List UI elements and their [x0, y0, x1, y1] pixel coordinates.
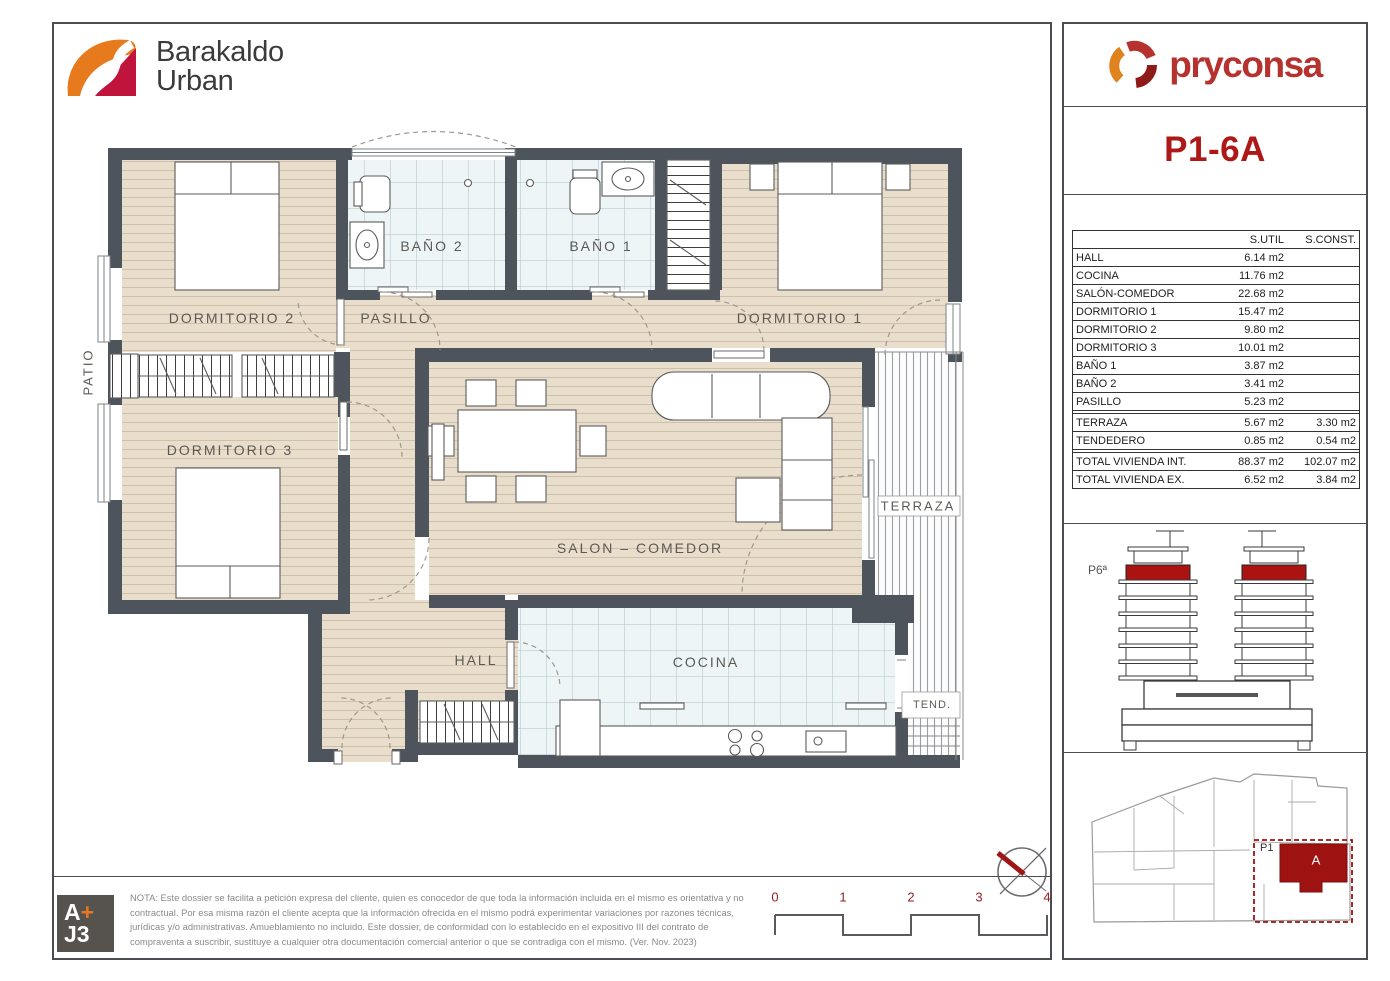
project-name-line2: Urban [156, 67, 284, 96]
compass-icon [998, 848, 1046, 896]
legal-note: NOTA: Este dossier se facilita a petició… [130, 891, 744, 949]
info-panel: pryconsa P1-6A S.UTIL S.CONST. HALL6.14 … [1062, 22, 1368, 960]
project-name-line1: Barakaldo [156, 38, 284, 67]
table-row: SALÓN-COMEDOR22.68 m2 [1073, 284, 1359, 302]
table-row-total: TOTAL VIVIENDA EX.6.52 m23.84 m2 [1073, 470, 1359, 488]
table-row: BAÑO 23.41 m2 [1073, 374, 1359, 392]
panel-divider-2 [1064, 194, 1366, 195]
room-label-tendedero: TEND. [913, 699, 951, 711]
room-label-dormitorio3: DORMITORIO 3 [167, 442, 293, 458]
scale-tick-0: 0 [771, 890, 778, 905]
table-row: DORMITORIO 29.80 m2 [1073, 320, 1359, 338]
architect-logo: A+ J3 [57, 895, 114, 952]
pryconsa-logo-icon [1108, 39, 1160, 91]
site-plan-svg [1064, 752, 1366, 958]
room-label-terraza: TERRAZA [881, 499, 956, 514]
scale-bar [775, 915, 1047, 935]
scale-tick-2: 2 [907, 890, 914, 905]
scale-tick-1: 1 [839, 890, 846, 905]
table-row: BAÑO 13.87 m2 [1073, 356, 1359, 374]
room-label-dormitorio2: DORMITORIO 2 [169, 310, 295, 326]
table-row-total: TOTAL VIVIENDA INT.88.37 m2102.07 m2 [1073, 449, 1359, 470]
room-label-salon-comedor: SALON – COMEDOR [557, 540, 723, 556]
barakaldo-logo-icon [62, 32, 142, 102]
col-header-sutil: S.UTIL [1217, 234, 1287, 246]
pryconsa-logo: pryconsa [1064, 24, 1366, 106]
areas-table: S.UTIL S.CONST. HALL6.14 m2 COCINA11.76 … [1072, 230, 1360, 489]
project-name: Barakaldo Urban [156, 38, 284, 96]
table-row: DORMITORIO 115.47 m2 [1073, 302, 1359, 320]
site-block-label: P1 [1260, 842, 1273, 854]
room-label-patio: PATIO [81, 348, 96, 395]
dossier-page: Barakaldo Urban DORMITORIO 2 PASILLO BAÑ… [0, 0, 1390, 981]
site-unit-label: A [1312, 853, 1321, 868]
barakaldo-urban-logo: Barakaldo Urban [62, 32, 284, 102]
room-label-bano2: BAÑO 2 [400, 238, 463, 254]
scale-tick-3: 3 [975, 890, 982, 905]
scale-tick-4: 4 [1043, 890, 1050, 905]
architect-logo-row2: J3 [64, 924, 114, 946]
developer-name: pryconsa [1169, 44, 1322, 86]
room-label-bano1: BAÑO 1 [569, 238, 632, 254]
room-label-hall: HALL [454, 652, 497, 668]
footer-divider [53, 876, 1050, 877]
room-label-pasillo: PASILLO [360, 310, 431, 326]
room-label-dormitorio1: DORMITORIO 1 [737, 310, 863, 326]
table-row: TERRAZA5.67 m23.30 m2 [1073, 410, 1359, 431]
areas-table-header: S.UTIL S.CONST. [1073, 231, 1359, 248]
room-label-cocina: COCINA [673, 654, 739, 670]
elevation-key: P6ª [1064, 523, 1366, 752]
elevation-svg [1064, 523, 1366, 752]
unit-code: P1-6A [1064, 106, 1366, 194]
table-row: HALL6.14 m2 [1073, 248, 1359, 266]
site-plan-key: P1 A [1064, 752, 1366, 958]
col-header-sconst: S.CONST. [1287, 234, 1359, 246]
table-row: DORMITORIO 310.01 m2 [1073, 338, 1359, 356]
floor-level-label: P6ª [1088, 563, 1107, 577]
table-row: PASILLO5.23 m2 [1073, 392, 1359, 410]
table-row: COCINA11.76 m2 [1073, 266, 1359, 284]
table-row: TENDEDERO0.85 m20.54 m2 [1073, 431, 1359, 449]
